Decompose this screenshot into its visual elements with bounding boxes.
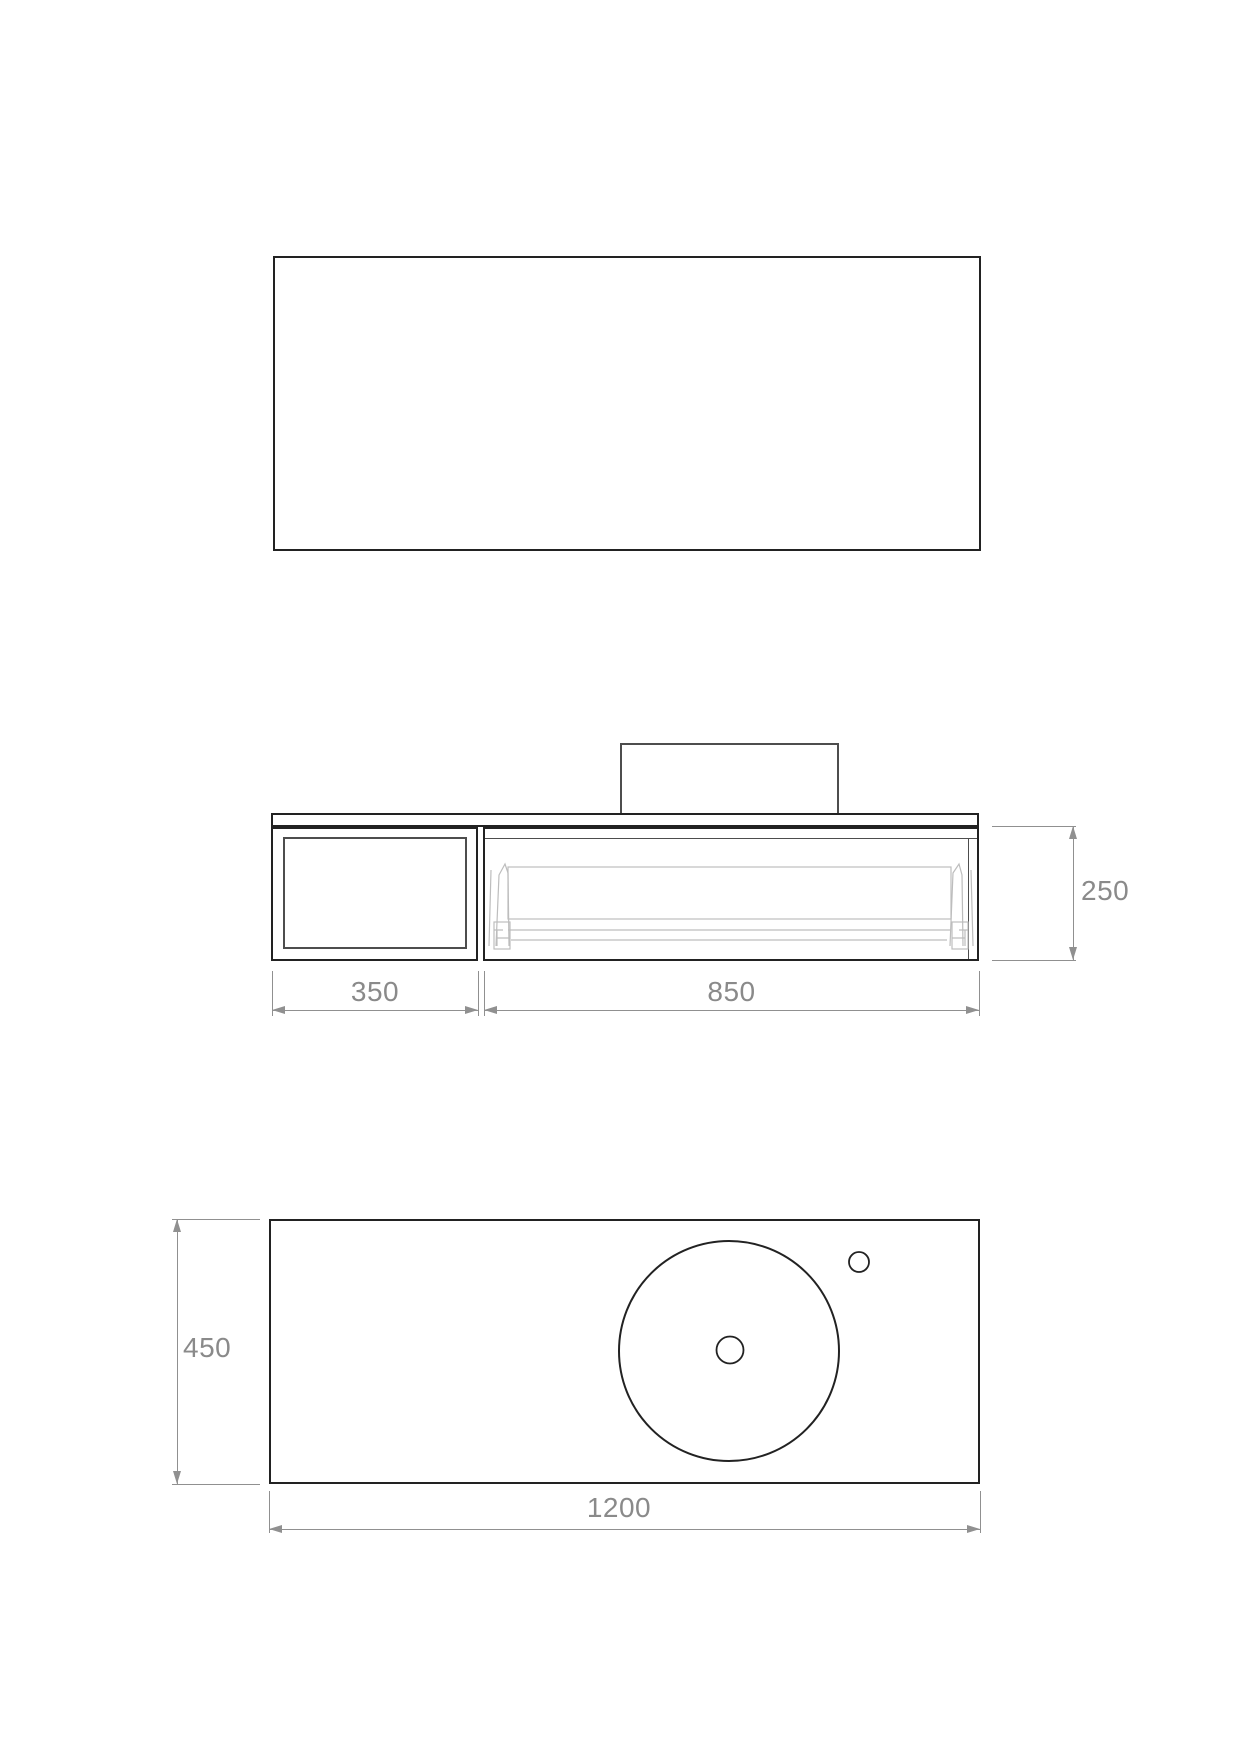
dim-850-label: 850 bbox=[484, 978, 979, 1006]
right-slide-clip-steps bbox=[952, 930, 968, 946]
dim-850-ext-right bbox=[979, 971, 980, 1016]
left-slide-bracket bbox=[496, 864, 509, 946]
dim-850-arrow-left bbox=[484, 1006, 497, 1014]
drain-circle bbox=[717, 1337, 744, 1364]
dim-450-arrow-bottom bbox=[173, 1471, 181, 1484]
backsplash-outline bbox=[620, 743, 839, 813]
dim-1200-label: 1200 bbox=[269, 1494, 969, 1522]
left-runner-line bbox=[489, 870, 491, 946]
dim-250-ext-top bbox=[992, 826, 1076, 827]
mirror-panel-outline bbox=[273, 256, 981, 551]
dim-1200-arrow-left bbox=[269, 1525, 282, 1533]
dim-450-arrow-top bbox=[173, 1219, 181, 1232]
countertop-plan-svg bbox=[269, 1219, 980, 1484]
drawer-box-outline bbox=[508, 867, 951, 919]
open-compartment-inner bbox=[283, 837, 467, 949]
dim-250-arrow-top bbox=[1069, 826, 1077, 839]
dim-1200-arrow-right bbox=[967, 1525, 980, 1533]
drawer-mechanism-svg bbox=[483, 858, 979, 962]
dim-1200-line bbox=[269, 1529, 980, 1530]
dim-450-label: 450 bbox=[183, 1334, 231, 1362]
technical-drawing-canvas: 350 850 250 bbox=[0, 0, 1242, 1755]
dim-450-ext-top bbox=[172, 1219, 260, 1220]
faucet-hole-circle bbox=[849, 1252, 869, 1272]
dim-350-line bbox=[272, 1010, 478, 1011]
right-runner-line bbox=[971, 870, 973, 946]
dim-450-line bbox=[177, 1219, 178, 1484]
dim-350-arrow-left bbox=[272, 1006, 285, 1014]
dim-350-label: 350 bbox=[272, 978, 478, 1006]
dim-1200-ext-right bbox=[980, 1491, 981, 1533]
dim-250-arrow-bottom bbox=[1069, 947, 1077, 960]
dim-250-ext-bottom bbox=[992, 960, 1076, 961]
basin-circle bbox=[619, 1241, 839, 1461]
dim-350-ext-right bbox=[478, 971, 479, 1016]
countertop-front-outline bbox=[271, 813, 979, 827]
dim-850-arrow-right bbox=[966, 1006, 979, 1014]
dim-350-arrow-right bbox=[465, 1006, 478, 1014]
dim-250-line bbox=[1073, 826, 1074, 960]
drawer-unit-top-rail-line bbox=[485, 838, 977, 839]
dim-250-label: 250 bbox=[1081, 877, 1129, 905]
dim-850-line bbox=[484, 1010, 979, 1011]
dim-450-ext-bottom bbox=[172, 1484, 260, 1485]
